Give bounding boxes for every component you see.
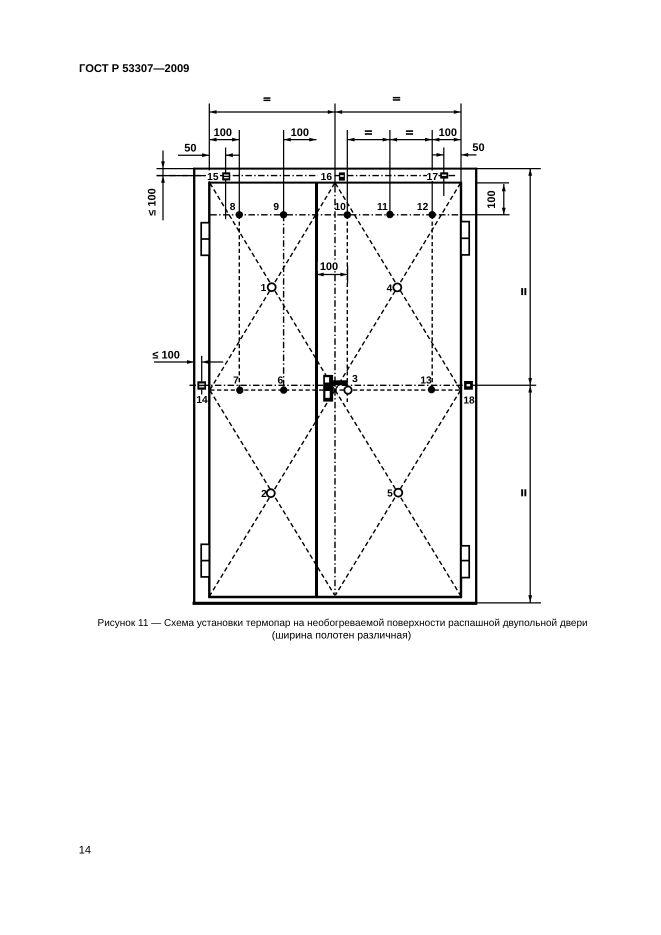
svg-text:12: 12 bbox=[417, 202, 429, 213]
svg-text:3: 3 bbox=[352, 374, 358, 385]
svg-text:17: 17 bbox=[427, 172, 439, 183]
svg-text:8: 8 bbox=[230, 202, 236, 213]
svg-text:≤ 100: ≤ 100 bbox=[147, 188, 159, 215]
svg-text:14: 14 bbox=[196, 395, 208, 406]
svg-text:100: 100 bbox=[291, 127, 309, 139]
svg-text:13: 13 bbox=[420, 376, 432, 387]
svg-text:100: 100 bbox=[486, 190, 498, 208]
svg-text:4: 4 bbox=[387, 283, 393, 294]
svg-text:(ширина полотен различная): (ширина полотен различная) bbox=[272, 630, 412, 641]
svg-text:9: 9 bbox=[273, 202, 279, 213]
svg-text:10: 10 bbox=[335, 202, 347, 213]
svg-text:100: 100 bbox=[439, 127, 457, 139]
svg-text:100: 100 bbox=[320, 261, 338, 273]
svg-text:11: 11 bbox=[377, 202, 388, 213]
svg-text:7: 7 bbox=[233, 376, 239, 387]
svg-text:14: 14 bbox=[79, 845, 91, 857]
svg-text:18: 18 bbox=[463, 396, 475, 407]
svg-text:6: 6 bbox=[277, 376, 283, 387]
svg-text:ГОСТ Р 53307—2009: ГОСТ Р 53307—2009 bbox=[79, 63, 189, 75]
svg-text:5: 5 bbox=[387, 489, 393, 500]
svg-text:50: 50 bbox=[184, 142, 196, 154]
svg-text:≤ 100: ≤ 100 bbox=[152, 349, 179, 361]
svg-text:2: 2 bbox=[261, 489, 267, 500]
svg-text:Рисунок 11 — Схема установки т: Рисунок 11 — Схема установки термопар на… bbox=[98, 618, 588, 629]
svg-text:16: 16 bbox=[321, 172, 333, 183]
svg-text:100: 100 bbox=[214, 127, 232, 139]
svg-text:15: 15 bbox=[207, 172, 219, 183]
svg-text:1: 1 bbox=[261, 283, 267, 294]
svg-text:50: 50 bbox=[472, 142, 484, 154]
